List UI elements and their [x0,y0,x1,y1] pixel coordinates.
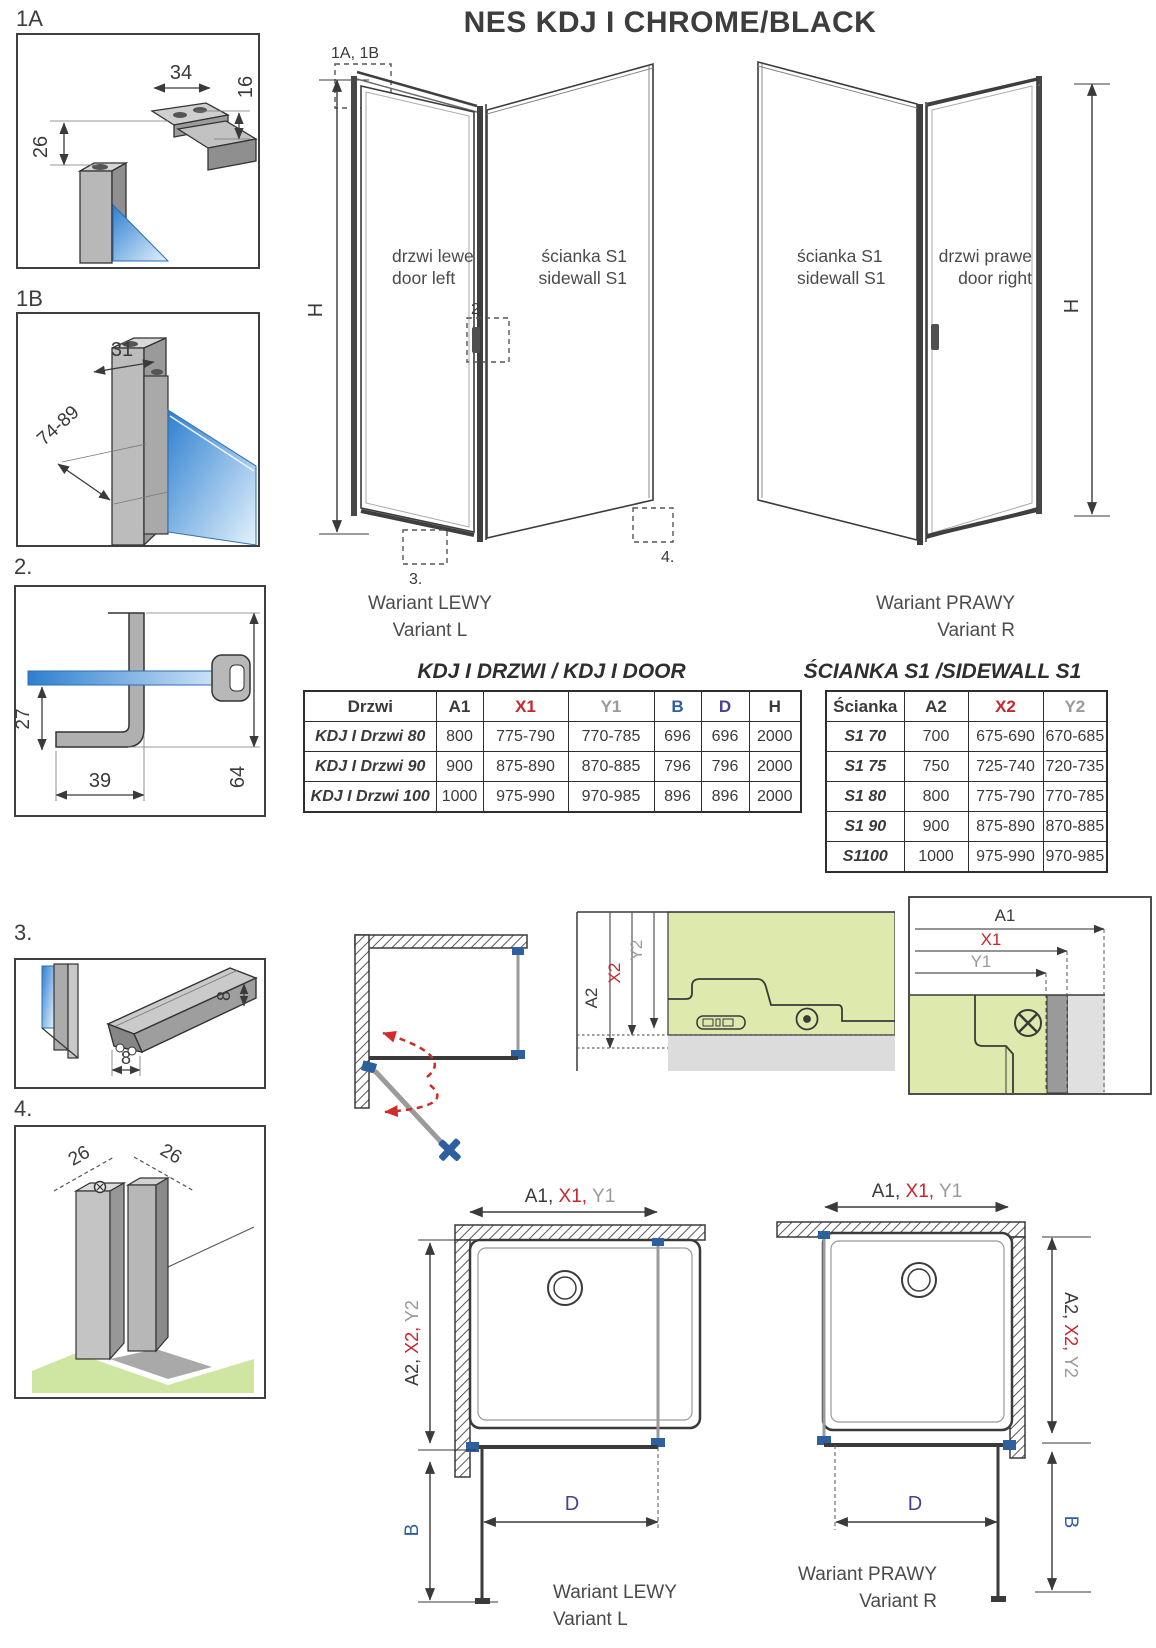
detail-1b-box: 31 74-89 [16,312,260,547]
cell: 775-790 [483,722,568,752]
cell: 800 [436,722,483,752]
detail-1b-drawing: 31 74-89 [18,314,258,545]
table-row: S1 70 700 675-690 670-685 [826,722,1107,752]
sidewall-mount-detail: A2 X2 Y2 [545,858,895,1073]
cell: 796 [654,752,701,782]
door-table-title: KDJ I DRZWI / KDJ I DOOR [303,660,800,684]
cell: 900 [904,812,968,842]
x1-label: X1 [981,930,1002,949]
cell: 870-885 [1043,812,1107,842]
detail-1a-drawing: 34 16 26 [18,35,258,267]
x2-label: X2 [605,963,624,984]
header-cell: A1 [436,691,483,722]
detail-1b-label: 1B [16,286,43,312]
table-row: S1 90 900 875-890 870-885 [826,812,1107,842]
detail-4-drawing: 26 26 [16,1127,264,1397]
header-cell: Ścianka [826,691,904,722]
header-cell: X2 [968,691,1043,722]
wall-top [455,1225,705,1240]
cell: 896 [701,782,749,813]
plan-view-right: A1, X1, Y1 A2, X2, Y2 [735,1130,1135,1648]
sidewall-table-title: ŚCIANKA S1 /SIDEWALL S1 [770,660,1115,684]
a1-part: A1, [525,1186,559,1207]
cell: 796 [701,752,749,782]
b-label: B [402,1524,423,1537]
cell: 750 [904,752,968,782]
wall-label-en: sidewall S1 [797,268,886,288]
cell: 700 [904,722,968,752]
header-cell: B [654,691,701,722]
cell: 970-985 [1043,842,1107,873]
top-dim-label: A1, X1, Y1 [872,1181,963,1202]
sidewall-glass [511,947,525,1059]
callout-1a1b: 1A, 1B [331,45,379,62]
door-label-pl: drzwi prawe [939,246,1032,266]
a2-part: A2, [402,1354,422,1386]
cell: 775-790 [968,782,1043,812]
detail-2-label: 2. [14,554,32,580]
bracket-arm-figure [80,103,256,263]
product-datasheet: NES KDJ I CHROME/BLACK 1A 34 [0,0,1156,1648]
detail-2-drawing: 27 39 64 [16,587,264,815]
side-dim-label: A2, X2, Y2 [1061,1292,1081,1378]
detail-2-box: 27 39 64 [14,585,266,817]
iso-view-right: H ścianka S1 sidewall S1 drzwi prawe doo… [700,40,1140,600]
header-cell: H [749,691,801,722]
door-label-en: door right [958,268,1032,288]
dim-39-value: 39 [89,770,111,792]
wall-left [355,935,369,1108]
detail-3-drawing: 8 8 [16,960,264,1087]
dim-34-value: 34 [170,62,192,84]
header-cell: A2 [904,691,968,722]
cell: 975-990 [483,782,568,813]
wall-profile-figure [112,338,256,545]
dim-8h-value: 8 [121,1048,131,1068]
page-title: NES KDJ I CHROME/BLACK [240,6,1100,40]
detail-3-label: 3. [14,920,32,946]
wall-surface [1068,995,1105,1093]
x2-part: X2, [1061,1324,1081,1356]
cell: 975-990 [968,842,1043,873]
door-panel [351,72,477,535]
door-hinge [1003,1440,1016,1450]
dim-64-value: 64 [227,766,249,788]
cell: 900 [436,752,483,782]
dim-26-left-value: 26 [65,1142,94,1171]
table-row: S1 75 750 725-740 720-735 [826,752,1107,782]
caption-left: Wariant LEWY Variant L [340,590,520,644]
a2-label: A2 [582,988,601,1009]
y1-part: Y1 [939,1181,962,1202]
d-dim [835,1445,997,1530]
door-open [991,1447,1006,1602]
header-cell: Drzwi [304,691,436,722]
y1-part: Y1 [592,1186,615,1207]
dim-74-89-value: 74-89 [33,402,83,450]
dim-26-right-value: 26 [156,1140,185,1169]
header-row: Drzwi A1 X1 Y1 B D H [304,691,801,722]
y2-part: Y2 [1061,1356,1081,1378]
floor [32,1349,254,1393]
x1-part: X1, [559,1186,592,1207]
iso-view-left: 1A, 1B H drzwi lewe door left ścianka S1 [295,40,695,600]
door-handle [472,327,480,353]
cell: 770-785 [1043,782,1107,812]
cell: KDJ I Drzwi 90 [304,752,436,782]
header-row: Ścianka A2 X2 Y2 [826,691,1107,722]
corner-profile-figure [76,1178,254,1359]
marker-2-label: 2. [471,301,484,318]
sidewall-table: Ścianka A2 X2 Y2 S1 70 700 675-690 670-6… [825,690,1108,873]
door-label-en: door left [392,268,455,288]
header-cell: Y1 [568,691,654,722]
dim-8v-value: 8 [214,991,234,1001]
dim-26-value: 26 [30,136,52,158]
x1-part: X1, [906,1181,939,1202]
plan-caption-line1: Wariant PRAWY [798,1564,937,1585]
handle-figure [28,613,250,747]
door-mount-detail: A1 X1 Y1 [905,893,1155,1098]
plan-caption-line2: Variant L [553,1609,628,1630]
cell: 696 [701,722,749,752]
sidewall-panel [758,62,917,540]
cell: S1 75 [826,752,904,782]
door-table: Drzwi A1 X1 Y1 B D H KDJ I Drzwi 80 800 … [303,690,802,813]
a1-label: A1 [995,906,1016,925]
cell: 2000 [749,782,801,813]
caption-right-line2: Variant R [840,617,1015,644]
cell: 1000 [436,782,483,813]
wall-left [455,1240,470,1477]
table-row: KDJ I Drzwi 80 800 775-790 770-785 696 6… [304,722,801,752]
top-dim-label: A1, X1, Y1 [525,1186,616,1207]
dim-26 [50,121,168,165]
corner-post [480,104,486,542]
a1-part: A1, [872,1181,906,1202]
dim-27-value: 27 [16,708,34,729]
detail-4-label: 4. [14,1096,32,1122]
caption-left-line2: Variant L [340,617,520,644]
table-row: KDJ I Drzwi 90 900 875-890 870-885 796 7… [304,752,801,782]
cell: S1 70 [826,722,904,752]
cell: 1000 [904,842,968,873]
wall-label-pl: ścianka S1 [541,246,627,266]
detail-4-box: 26 26 [14,1125,266,1399]
wall-top [355,935,527,948]
dim-31-value: 31 [111,339,133,361]
cell: 800 [904,782,968,812]
cell: 670-685 [1043,722,1107,752]
cell: 2000 [749,722,801,752]
caption-right-line1: Wariant PRAWY [840,590,1015,617]
cell: 770-785 [568,722,654,752]
height-label: H [305,303,327,317]
marker-4-box [633,508,673,542]
y1-label: Y1 [971,952,992,971]
cell: 720-735 [1043,752,1107,782]
door-table-head: Drzwi A1 X1 Y1 B D H [304,691,801,722]
marker-3-box [403,530,447,564]
detail-1a-box: 34 16 26 [16,33,260,269]
cell: 725-740 [968,752,1043,782]
b-dim [418,1462,498,1602]
tray-edge [668,1035,895,1071]
door-open [475,1449,490,1604]
header-cell: X1 [483,691,568,722]
plan-caption-line2: Variant R [859,1591,937,1612]
bottom-seal-figure [108,968,256,1055]
header-cell: D [701,691,749,722]
height-label: H [1061,299,1083,313]
shower-tray [470,1240,700,1428]
cell: 2000 [749,752,801,782]
cell: 696 [654,722,701,752]
dim-16-value: 16 [235,76,257,98]
caption-left-line1: Wariant LEWY [340,590,520,617]
cell: S1 80 [826,782,904,812]
y2-part: Y2 [402,1300,422,1322]
detail-3-box: 8 8 [14,958,266,1089]
d-label: D [908,1493,922,1515]
detail-1a-label: 1A [16,6,43,32]
cell: 896 [654,782,701,813]
header-cell: Y2 [1043,691,1107,722]
corner-post [920,102,926,545]
table-row: KDJ I Drzwi 100 1000 975-990 970-985 896… [304,782,801,813]
d-label: D [565,1493,579,1515]
plan-view-left: A1, X1, Y1 A2, X2, Y2 [390,1130,735,1648]
a2-part: A2, [1061,1292,1081,1324]
d-dim [484,1447,658,1530]
cell: KDJ I Drzwi 100 [304,782,436,813]
sidewall-table-head: Ścianka A2 X2 Y2 [826,691,1107,722]
wall-label-en: sidewall S1 [538,268,627,288]
door-panel [927,76,1042,538]
plan-caption-line1: Wariant LEWY [553,1582,677,1603]
door-handle [931,324,939,350]
cell: 875-890 [483,752,568,782]
wall-profile [1047,995,1068,1093]
cell: 870-885 [568,752,654,782]
wall-label-pl: ścianka S1 [797,246,883,266]
marker-3-label: 3. [409,571,422,588]
swing-arrows [383,1033,437,1112]
cell: 675-690 [968,722,1043,752]
x2-part: X2, [402,1322,422,1354]
table-row: S1 80 800 775-790 770-785 [826,782,1107,812]
cell: KDJ I Drzwi 80 [304,722,436,752]
b-label: B [1060,1516,1081,1529]
cell: 875-890 [968,812,1043,842]
door-label-pl: drzwi lewe [392,246,474,266]
marker-4-label: 4. [661,549,674,566]
y2-label: Y2 [627,940,646,961]
caption-right: Wariant PRAWY Variant R [840,590,1015,644]
cell: S1 90 [826,812,904,842]
side-dim-label: A2, X2, Y2 [402,1300,422,1386]
cell: 970-985 [568,782,654,813]
sidewall-panel [487,64,653,538]
door-bottom-corner-figure [42,964,78,1058]
